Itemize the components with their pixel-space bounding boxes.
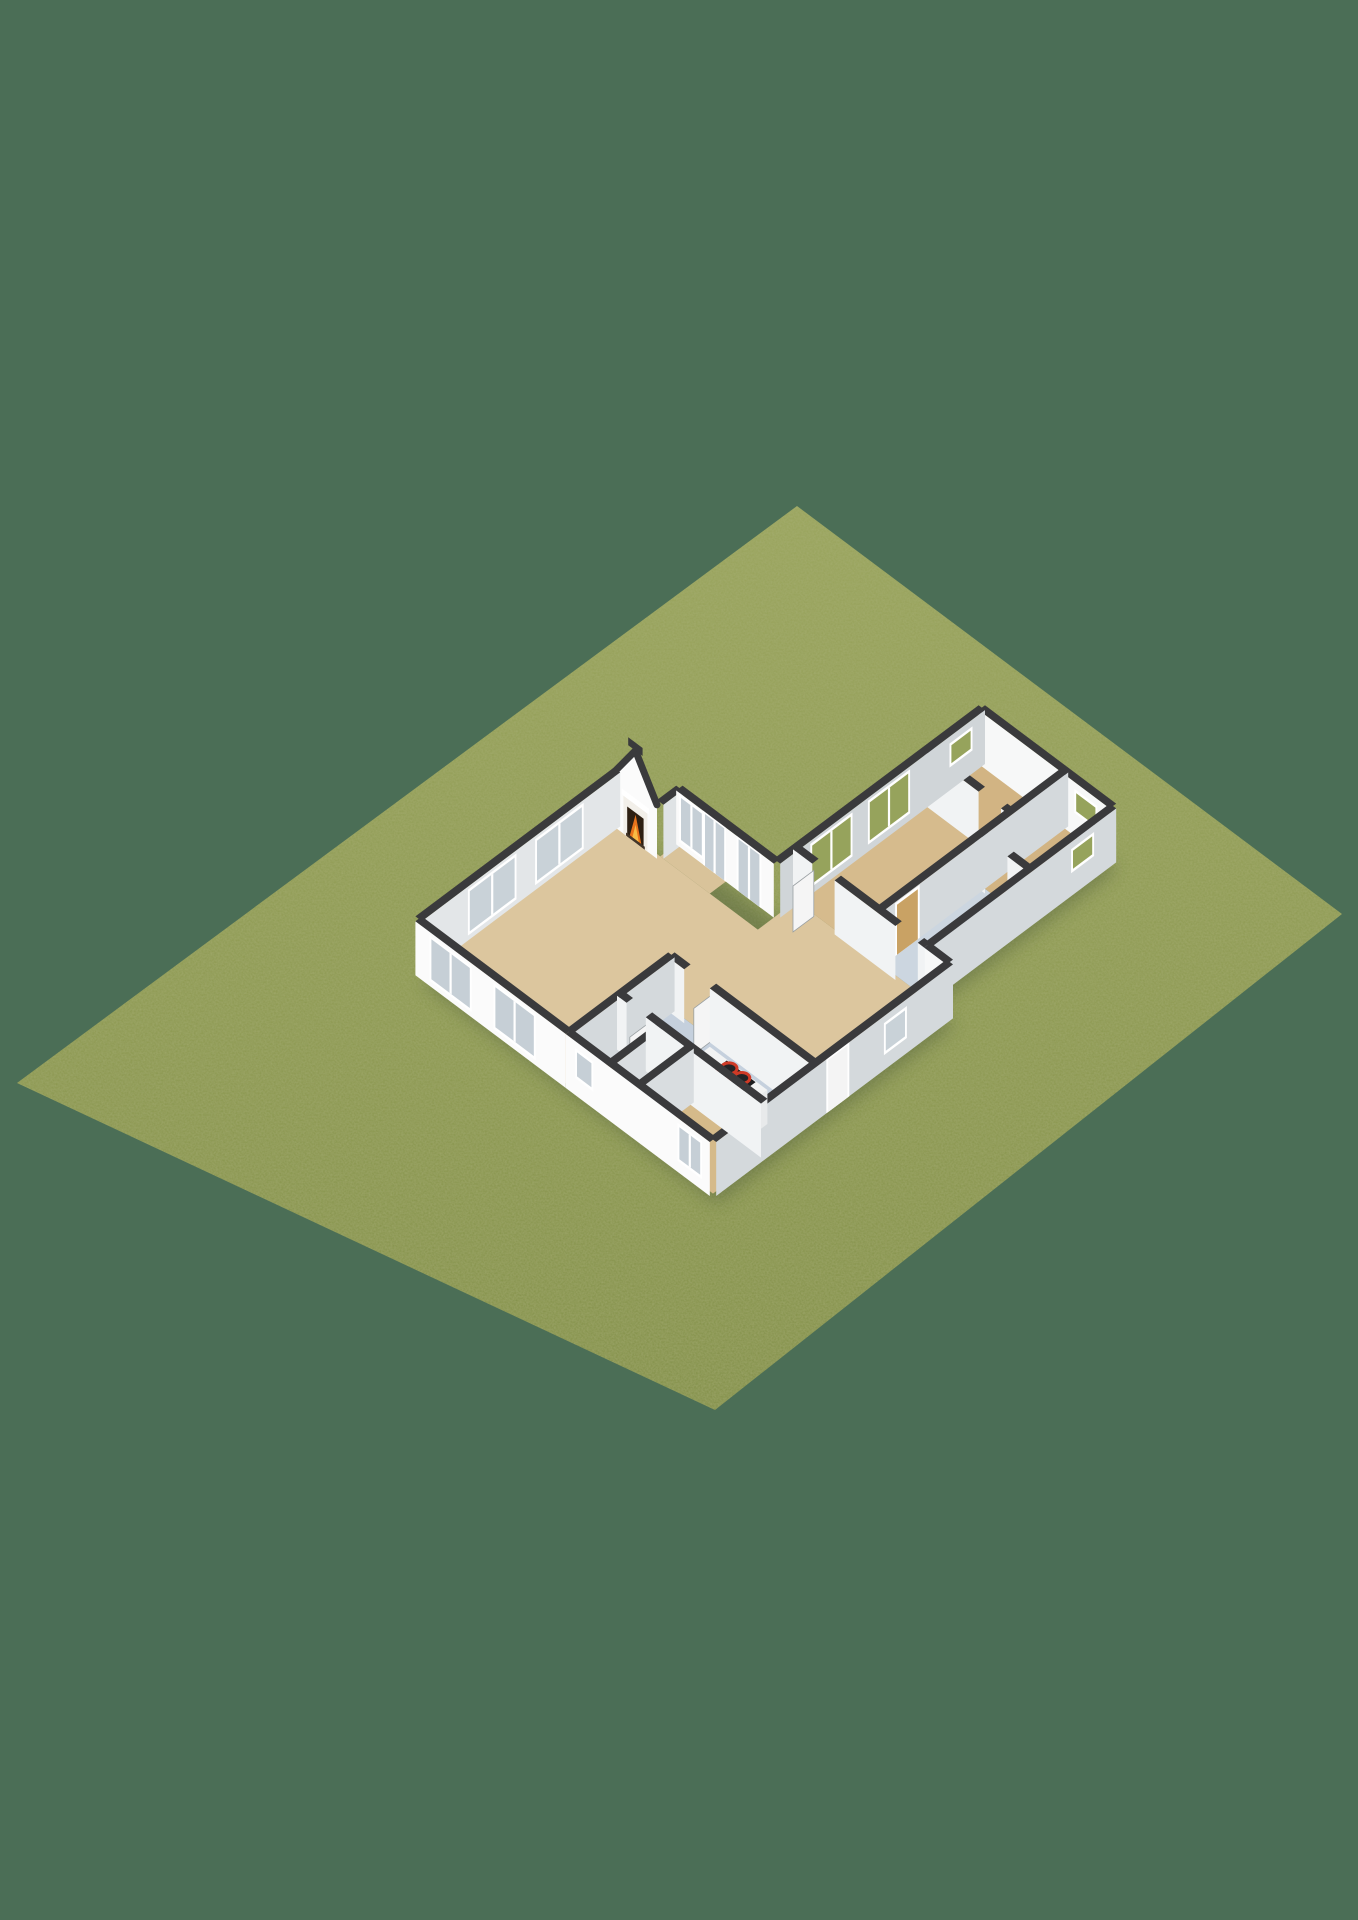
- floorplan-3d-render: [0, 0, 1358, 1920]
- window-mullion: [450, 953, 452, 995]
- floorplan-3d-viewport[interactable]: [0, 0, 1358, 1920]
- window-mullion: [689, 1134, 691, 1168]
- window-mullion: [714, 820, 716, 874]
- window-mullion: [514, 1001, 516, 1043]
- window-mullion: [558, 823, 560, 865]
- window-mullion: [690, 805, 692, 849]
- window-mullion: [491, 874, 493, 916]
- window-mullion: [888, 787, 890, 827]
- window-mullion: [748, 846, 750, 900]
- window-mullion: [830, 830, 832, 870]
